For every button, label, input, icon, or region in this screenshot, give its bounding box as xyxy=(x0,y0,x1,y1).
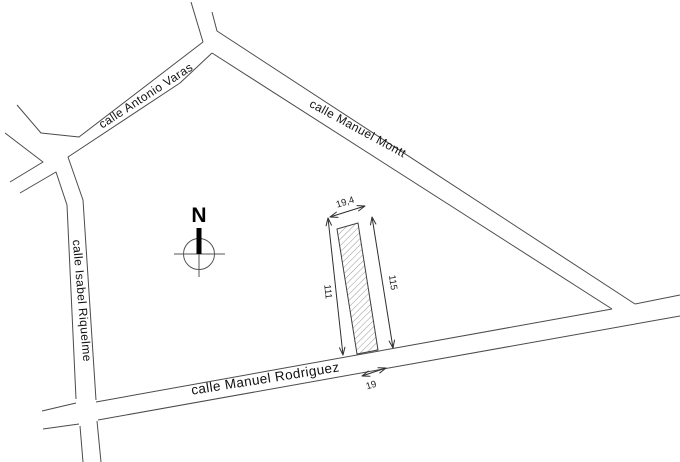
dimension-label-right: 115 xyxy=(386,274,399,291)
north-label: N xyxy=(191,204,206,227)
site-plan-map: 111 115 19,4 19 N calle Antonio Varas xyxy=(0,0,680,462)
map-canvas: 111 115 19,4 19 N calle Antonio Varas xyxy=(0,0,680,462)
dimension-label-left: 111 xyxy=(321,284,333,300)
north-arrow-bar-icon xyxy=(197,228,202,254)
